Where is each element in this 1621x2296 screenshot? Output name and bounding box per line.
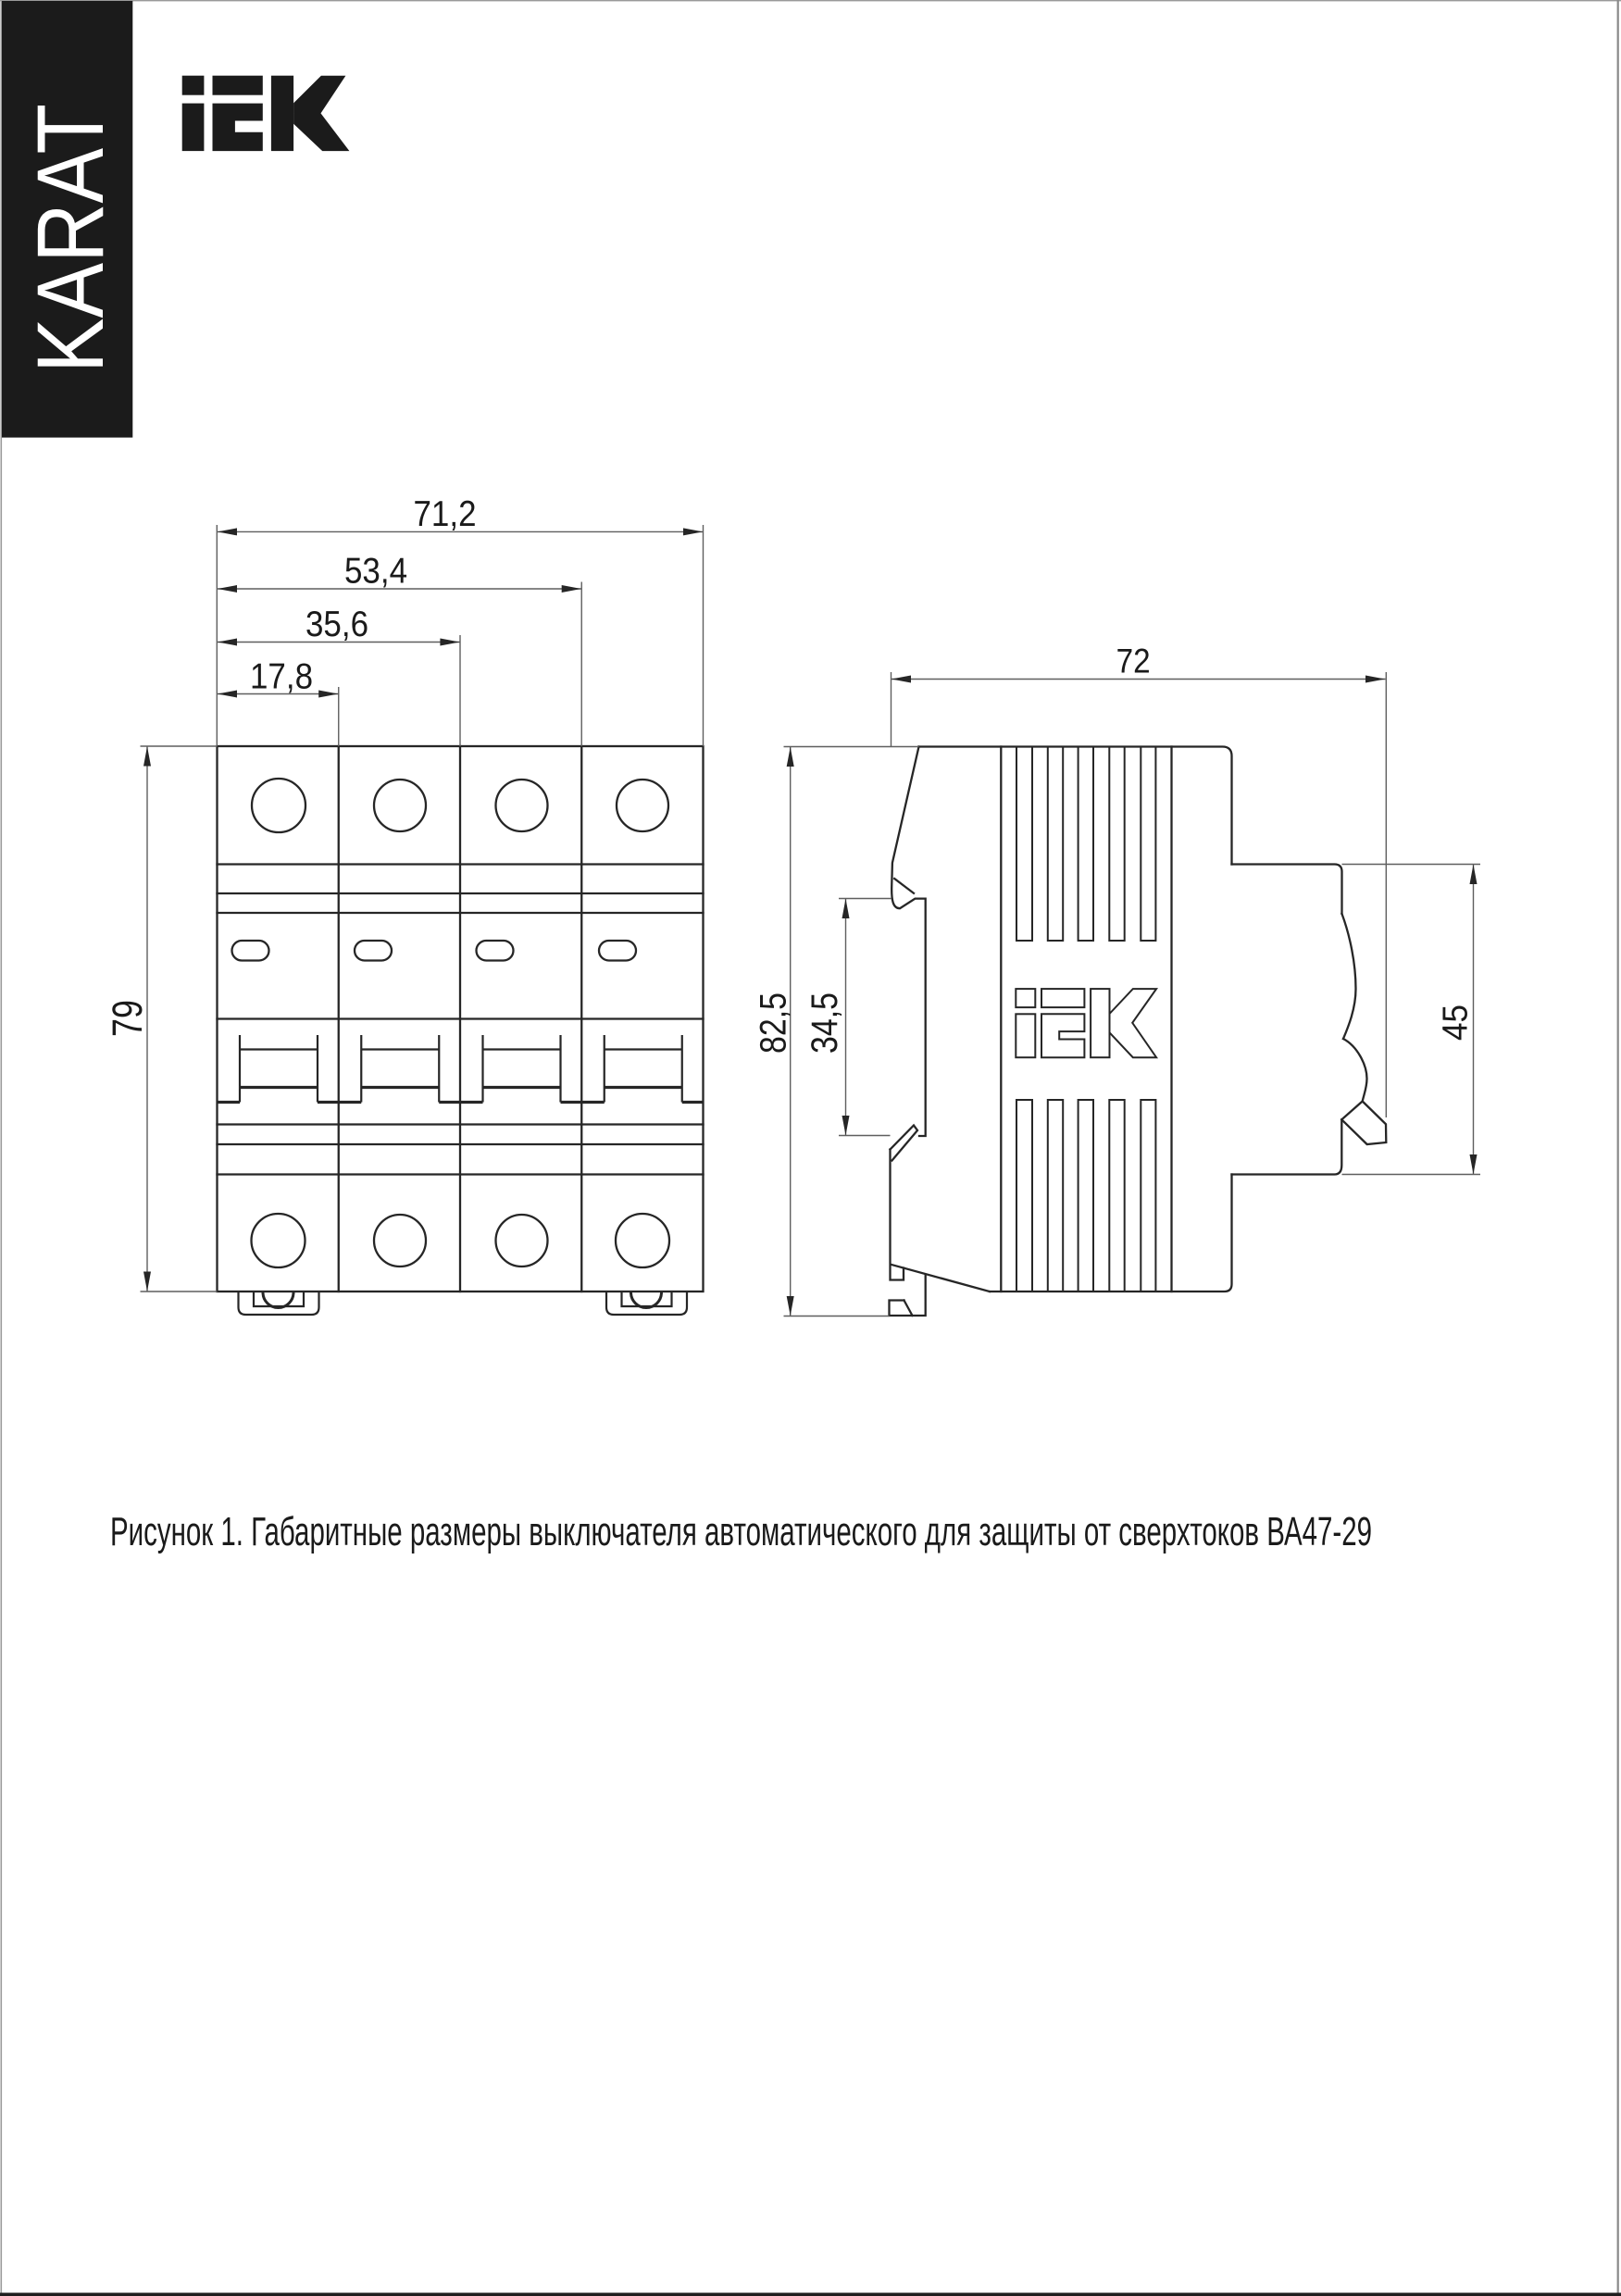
svg-text:79: 79 (104, 1000, 151, 1037)
svg-text:72: 72 (1116, 642, 1151, 680)
svg-text:Рисунок 1. Габаритные размеры: Рисунок 1. Габаритные размеры выключател… (110, 1509, 1372, 1554)
svg-text:45: 45 (1436, 1004, 1475, 1041)
svg-text:34,5: 34,5 (804, 992, 845, 1054)
svg-text:82,5: 82,5 (754, 992, 794, 1054)
svg-text:53,4: 53,4 (344, 552, 407, 592)
svg-text:35,6: 35,6 (305, 605, 368, 644)
svg-text:KARAT: KARAT (18, 104, 123, 373)
svg-text:71,2: 71,2 (414, 494, 477, 534)
svg-text:17,8: 17,8 (250, 657, 313, 697)
